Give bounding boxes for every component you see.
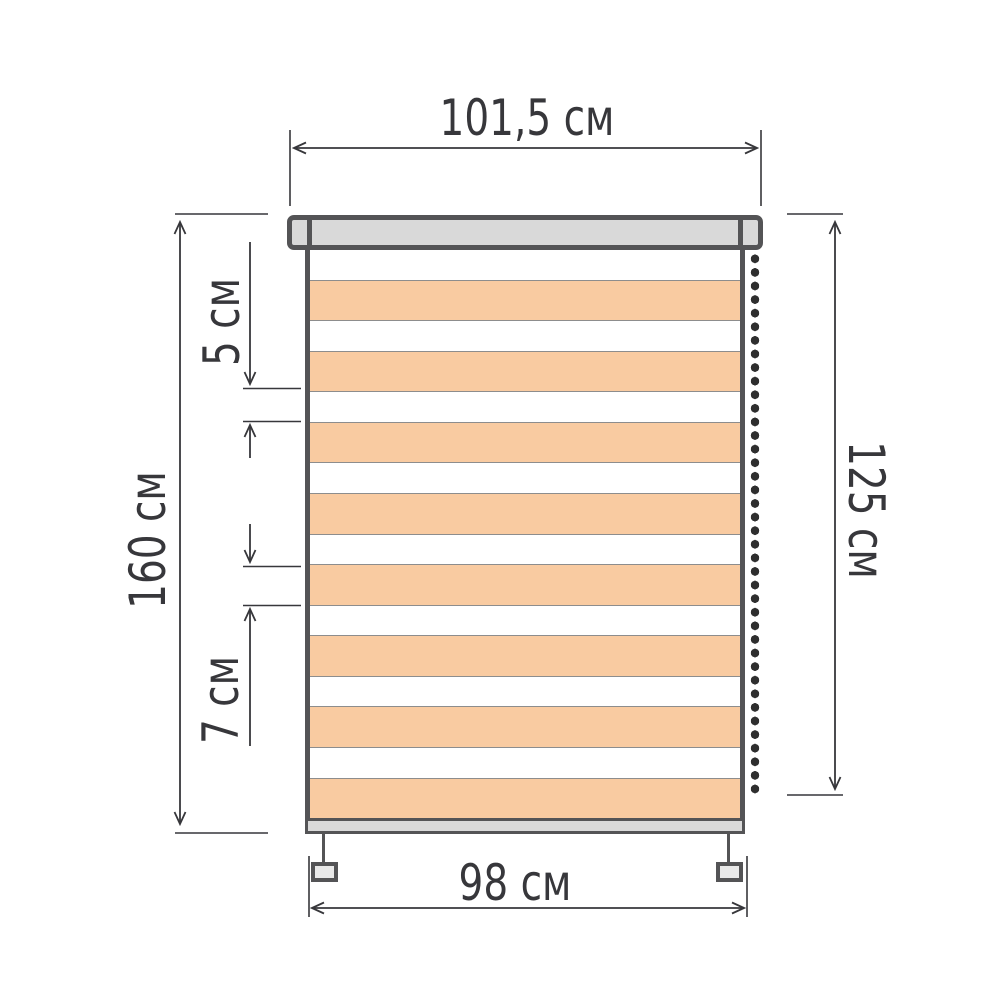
gap-stripe-dimension [243, 242, 301, 458]
fabric-gap-stripe [310, 534, 740, 565]
bracket-hanger-right [727, 833, 730, 863]
fabric-gap-stripe [310, 747, 740, 778]
gap-stripe-label: 5 см [197, 278, 247, 366]
cassette-bar [287, 215, 763, 250]
fabric-solid-stripe [310, 778, 740, 818]
fabric-solid-stripe [310, 635, 740, 675]
blind-dimension-diagram: 101,5 см 98 см 160 см 125 см 5 см 7 см [0, 0, 1000, 1000]
fabric-gap-stripe [310, 676, 740, 707]
fabric-gap-stripe [310, 320, 740, 351]
drop-height-dimension [787, 214, 843, 795]
fabric-solid-stripe [310, 493, 740, 533]
bracket-hanger-left [322, 833, 325, 863]
cassette-left-end-cap [307, 220, 312, 245]
mounting-bracket-right [716, 862, 743, 882]
fabric-gap-stripe [310, 250, 740, 280]
fabric-solid-stripe [310, 706, 740, 746]
bottom-weight-bar [305, 818, 745, 834]
cassette-width-label: 101,5 см [440, 93, 615, 143]
total-height-label: 160 см [123, 471, 173, 609]
solid-stripe-label: 7 см [196, 656, 246, 744]
mounting-bracket-left [311, 862, 338, 882]
fabric-solid-stripe [310, 564, 740, 604]
fabric-width-label: 98 см [459, 858, 572, 908]
blind-fabric [305, 250, 745, 818]
cassette-right-end-cap [738, 220, 743, 245]
fabric-solid-stripe [310, 422, 740, 462]
fabric-gap-stripe [310, 462, 740, 493]
fabric-gap-stripe [310, 391, 740, 422]
control-chain [749, 252, 761, 798]
fabric-solid-stripe [310, 280, 740, 320]
fabric-solid-stripe [310, 351, 740, 391]
solid-stripe-dimension [243, 524, 301, 746]
fabric-gap-stripe [310, 605, 740, 636]
drop-height-label: 125 см [841, 441, 891, 579]
